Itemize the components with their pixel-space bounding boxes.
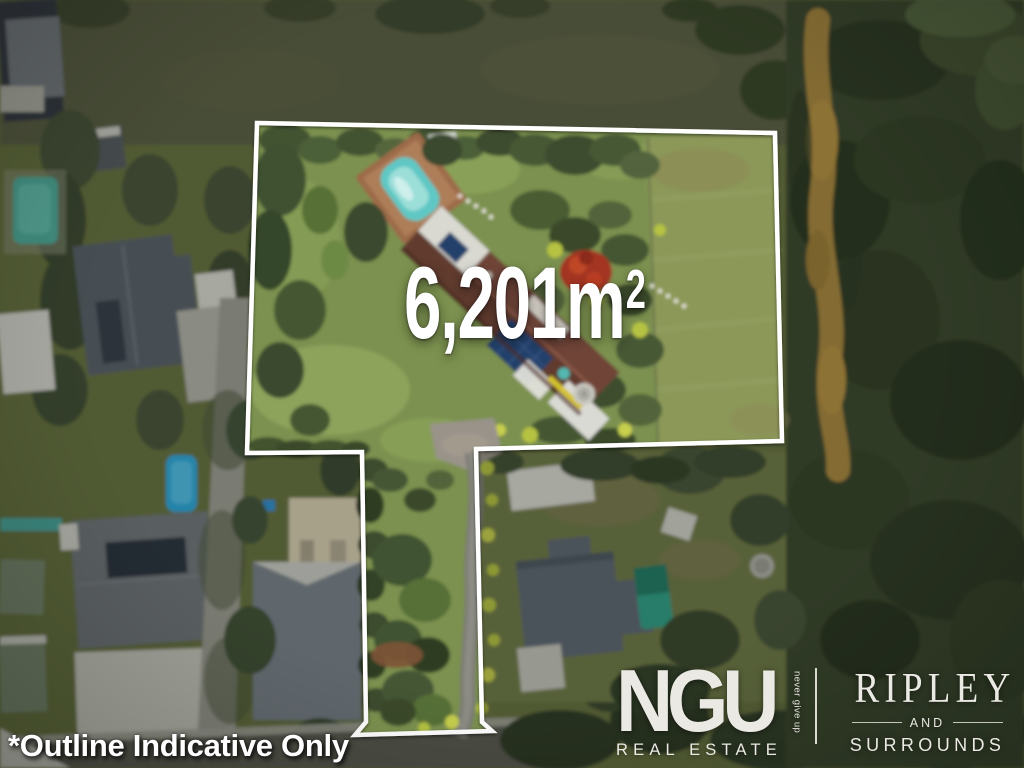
right-rule bbox=[953, 722, 1003, 723]
brand-divider bbox=[815, 668, 817, 744]
ripley-logo-block: RIPLEY AND SURROUNDS bbox=[844, 668, 1012, 756]
left-rule bbox=[852, 722, 902, 723]
ngu-logo-block: NGU never give up REAL ESTATE bbox=[616, 668, 792, 760]
land-area-value: 6,201m bbox=[404, 246, 624, 360]
land-area-superscript: 2 bbox=[626, 258, 645, 320]
agency-branding: NGU never give up REAL ESTATE RIPLEY AND… bbox=[616, 668, 1018, 764]
land-area-label: 6,201m2 bbox=[404, 252, 645, 354]
ngu-logo: NGU bbox=[616, 668, 773, 735]
ripley-connector: AND bbox=[910, 716, 945, 730]
satellite-dish bbox=[573, 383, 595, 405]
aerial-photo bbox=[0, 0, 1024, 768]
ngu-tagline: never give up bbox=[792, 671, 803, 735]
ripley-name: RIPLEY bbox=[854, 671, 1007, 709]
ripley-region: SURROUNDS bbox=[844, 735, 1012, 756]
outline-disclaimer: *Outline Indicative Only bbox=[8, 728, 349, 764]
aerial-listing-image: 6,201m2 *Outline Indicative Only NGU nev… bbox=[0, 0, 1024, 768]
